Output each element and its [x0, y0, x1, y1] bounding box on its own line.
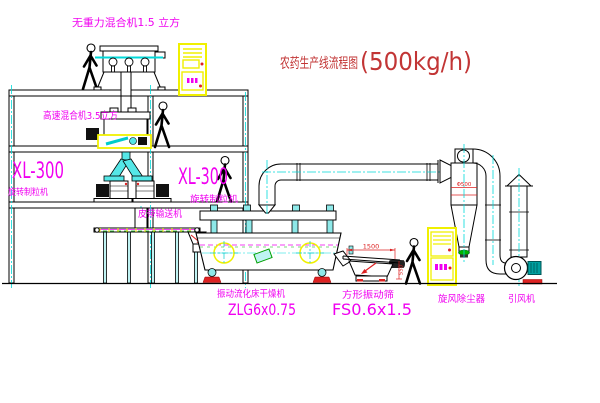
label-cyclone: 旋风除尘器	[438, 293, 485, 305]
label-high-speed-mixer: 高速混合机3.5立方	[43, 109, 118, 122]
label-granulator-left-model: XL-300	[12, 159, 64, 184]
sieve-height-dim: 550	[399, 264, 405, 275]
person-top-floor	[83, 44, 97, 89]
label-belt-conveyor: 皮带输送机	[138, 208, 182, 220]
induced-draft-fan	[505, 256, 543, 284]
diagram-title-capacity: (500kg/h)	[360, 47, 472, 76]
fluid-bed-dryer	[196, 205, 353, 283]
label-dryer-name: 振动流化床干燥机	[217, 288, 285, 300]
granulator-left	[94, 181, 132, 202]
person-ground-floor	[406, 239, 420, 284]
dryer-spring-foot-right	[313, 269, 331, 283]
label-granulator-right-model: XL-300	[178, 165, 228, 190]
sieve-length-dim: 1500	[363, 243, 380, 251]
dryer-spring-foot-left	[203, 269, 221, 283]
label-granulator-left-name: 旋转制粒机	[8, 186, 48, 198]
process-flow-diagram: 1500 550 Φ500	[0, 0, 600, 403]
label-sieve-model: FS0.6x1.5	[332, 300, 412, 319]
diagram-title: 农药生产线流程图	[280, 56, 358, 72]
belt-conveyor	[94, 228, 200, 283]
y-splitter-pipe	[104, 152, 152, 181]
label-dryer-model: ZLG6x0.75	[228, 300, 296, 319]
label-gravity-free-mixer: 无重力混合机1.5 立方	[72, 16, 180, 29]
label-fan: 引风机	[508, 293, 535, 305]
granulator-right	[133, 181, 171, 202]
downcomer-duct	[473, 149, 506, 274]
cad-drawing: 1500 550 Φ500	[0, 0, 600, 403]
label-granulator-right-name: 旋转制粒机	[190, 193, 238, 205]
person-second-floor	[155, 102, 169, 147]
high-speed-mixer	[86, 96, 151, 148]
exhaust-duct	[259, 160, 456, 216]
control-cabinet-1	[179, 44, 206, 95]
control-cabinet-2	[428, 228, 456, 285]
